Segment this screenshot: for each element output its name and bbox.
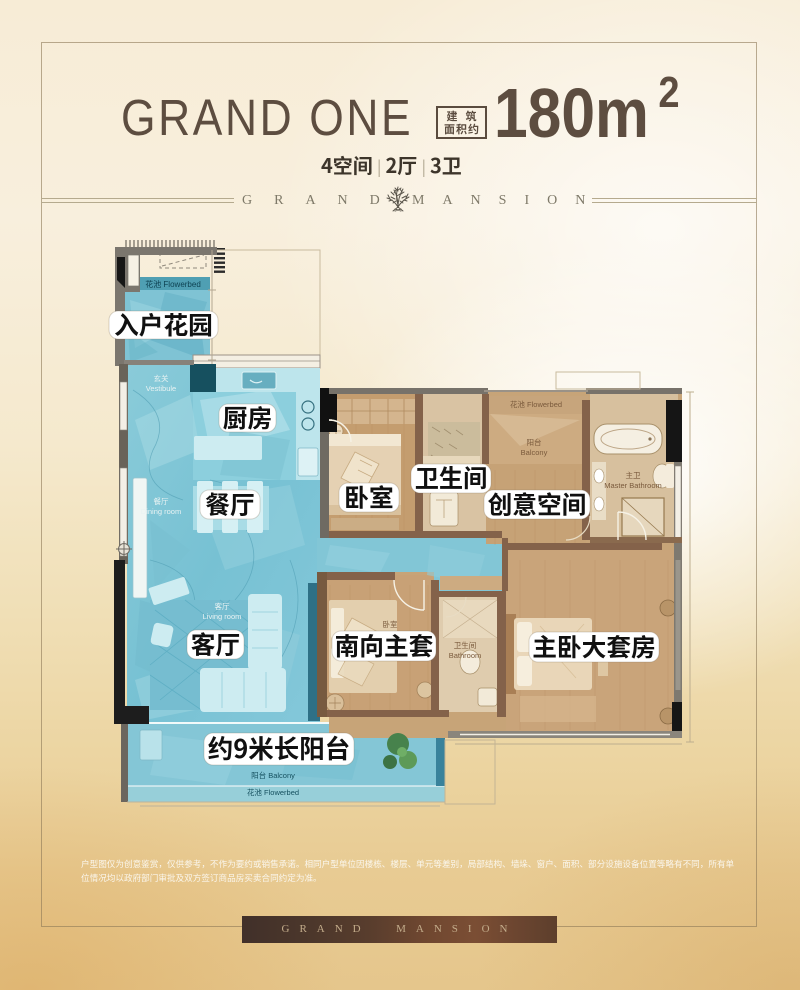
svg-text:花池 Flowerbed: 花池 Flowerbed xyxy=(247,787,299,798)
svg-text:卫生间: 卫生间 xyxy=(415,459,488,494)
svg-text:客厅: 客厅 xyxy=(191,625,240,661)
svg-text:Dining room: Dining room xyxy=(141,506,181,517)
svg-text:约9米长阳台: 约9米长阳台 xyxy=(208,729,351,766)
svg-text:花池 Flowerbed: 花池 Flowerbed xyxy=(510,399,562,410)
svg-text:主卧大套房: 主卧大套房 xyxy=(532,628,655,664)
svg-text:Master Bathroom: Master Bathroom xyxy=(604,480,662,491)
svg-text:厨房: 厨房 xyxy=(223,399,272,435)
svg-text:入户花园: 入户花园 xyxy=(114,306,213,342)
svg-text:Balcony: Balcony xyxy=(521,447,548,458)
svg-text:Living room: Living room xyxy=(203,611,242,622)
svg-text:南向主套: 南向主套 xyxy=(335,627,434,663)
svg-text:阳台 Balcony: 阳台 Balcony xyxy=(251,770,295,781)
svg-text:餐厅: 餐厅 xyxy=(205,485,254,521)
svg-text:Vestibule: Vestibule xyxy=(146,383,176,394)
svg-text:花池 Flowerbed: 花池 Flowerbed xyxy=(145,279,201,290)
svg-text:Bathroom: Bathroom xyxy=(449,650,482,661)
svg-text:卧室: 卧室 xyxy=(344,478,393,514)
svg-text:创意空间: 创意空间 xyxy=(488,485,587,521)
